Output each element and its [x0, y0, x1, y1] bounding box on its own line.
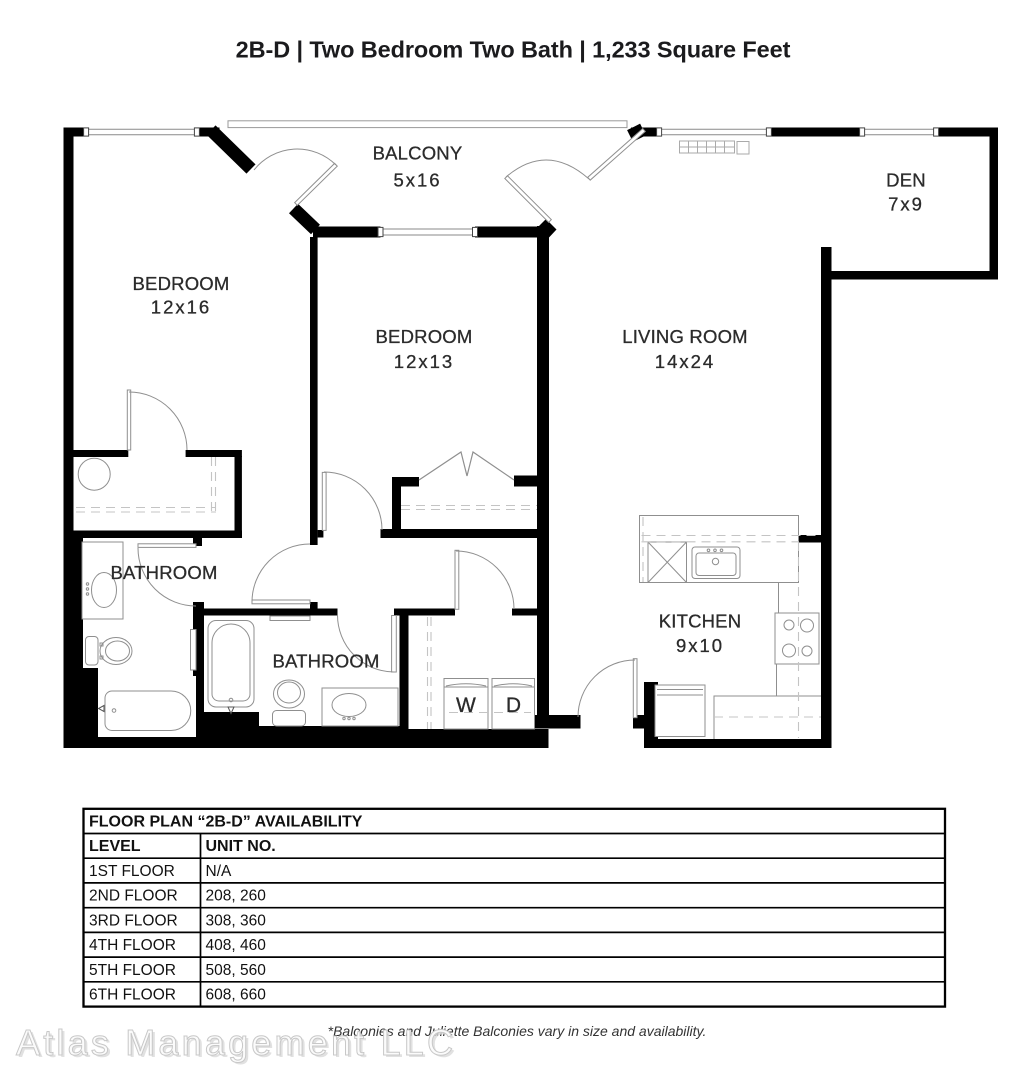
svg-text:4TH FLOOR: 4TH FLOOR: [89, 937, 176, 954]
svg-text:FLOOR PLAN “2B-D” AVAILABILITY: FLOOR PLAN “2B-D” AVAILABILITY: [89, 814, 363, 831]
svg-text:12x13: 12x13: [394, 351, 454, 372]
svg-text:1ST FLOOR: 1ST FLOOR: [89, 863, 175, 880]
svg-text:608, 660: 608, 660: [206, 987, 267, 1004]
svg-text:12x16: 12x16: [151, 297, 211, 318]
svg-text:5TH FLOOR: 5TH FLOOR: [89, 962, 176, 979]
svg-text:N/A: N/A: [206, 863, 233, 880]
svg-text:14x24: 14x24: [655, 351, 715, 372]
svg-text:UNIT NO.: UNIT NO.: [206, 838, 276, 855]
svg-text:BALCONY: BALCONY: [373, 143, 463, 164]
svg-text:W: W: [456, 694, 476, 717]
svg-text:3RD FLOOR: 3RD FLOOR: [89, 912, 178, 929]
svg-text:208, 260: 208, 260: [206, 888, 267, 905]
svg-text:6TH FLOOR: 6TH FLOOR: [89, 987, 176, 1004]
svg-text:Atlas Management LLC: Atlas Management LLC: [16, 1022, 456, 1063]
svg-text:2ND FLOOR: 2ND FLOOR: [89, 888, 178, 905]
svg-text:KITCHEN: KITCHEN: [659, 611, 742, 632]
svg-text:308, 360: 308, 360: [206, 912, 267, 929]
svg-text:7x9: 7x9: [888, 194, 924, 215]
svg-text:BATHROOM: BATHROOM: [110, 562, 217, 583]
svg-text:408, 460: 408, 460: [206, 937, 267, 954]
svg-text:DEN: DEN: [886, 170, 926, 191]
svg-text:2B-D | Two Bedroom Two Bath |: 2B-D | Two Bedroom Two Bath | 1,233 Squa…: [236, 37, 791, 63]
svg-text:BEDROOM: BEDROOM: [376, 326, 473, 347]
svg-text:9x10: 9x10: [676, 635, 724, 656]
svg-text:LEVEL: LEVEL: [89, 838, 141, 855]
svg-text:508, 560: 508, 560: [206, 962, 267, 979]
svg-text:BATHROOM: BATHROOM: [272, 651, 379, 672]
svg-text:5x16: 5x16: [393, 170, 441, 191]
svg-text:D: D: [506, 694, 521, 717]
svg-text:BEDROOM: BEDROOM: [133, 273, 230, 294]
svg-text:LIVING ROOM: LIVING ROOM: [622, 326, 748, 347]
